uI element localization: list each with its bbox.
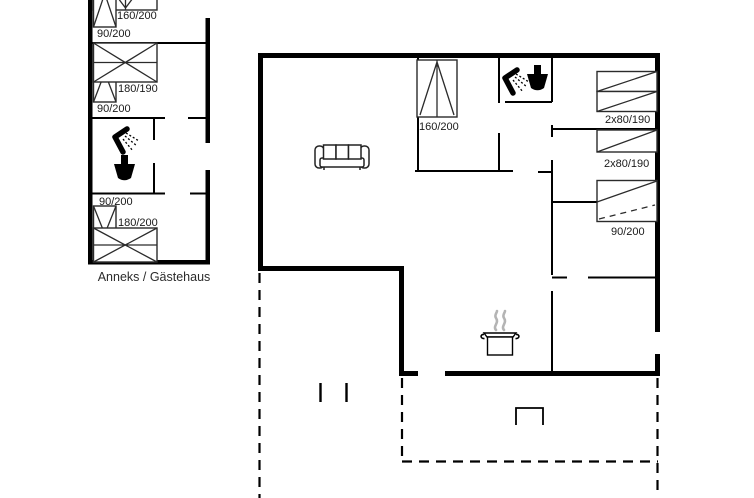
cooking-pot-icon: [481, 311, 519, 355]
annex-room3-double-bed: [94, 228, 158, 262]
annex-building: 160/200 90/200 180/190 90/200 90/200 180…: [88, 0, 210, 284]
shower-icon: [115, 129, 139, 152]
toilet-icon: [114, 155, 135, 180]
annex-room1-single-bed: [94, 0, 117, 27]
annex-room3-double-bed-label: 180/200: [118, 217, 158, 229]
annex-building-label: Anneks / Gästehaus: [98, 270, 211, 284]
annex-room2-double-bed: [94, 43, 158, 82]
shower-icon: [505, 70, 529, 93]
main-single-bed-label: 90/200: [611, 226, 645, 238]
floor-plan: 160/200 90/200 180/190 90/200 90/200 180…: [0, 0, 754, 498]
main-double-bed-label: 160/200: [419, 121, 459, 133]
terrace-grill-marker: [516, 408, 543, 425]
annex-room2-single-bed-label: 90/200: [97, 103, 131, 115]
annex-room1-single-bed-label: 90/200: [97, 28, 131, 40]
main-bunk-bed-2: [597, 130, 657, 152]
sofa-icon: [315, 145, 369, 170]
main-bunk-bed-1: [597, 72, 657, 112]
terrace-outline: [260, 273, 659, 498]
main-double-bed: [417, 60, 457, 117]
toilet-icon: [527, 65, 548, 90]
main-single-bed: [597, 181, 657, 222]
main-bunk2-label: 2x80/190: [604, 158, 649, 170]
annex-room1-double-bed-label: 160/200: [117, 10, 157, 22]
terrace-step-marks: [321, 383, 347, 402]
main-bunk1-label: 2x80/190: [605, 114, 650, 126]
main-house: 160/200 2x80/190 2x80/190 90/200: [258, 53, 660, 376]
annex-room2-double-bed-label: 180/190: [118, 83, 158, 95]
